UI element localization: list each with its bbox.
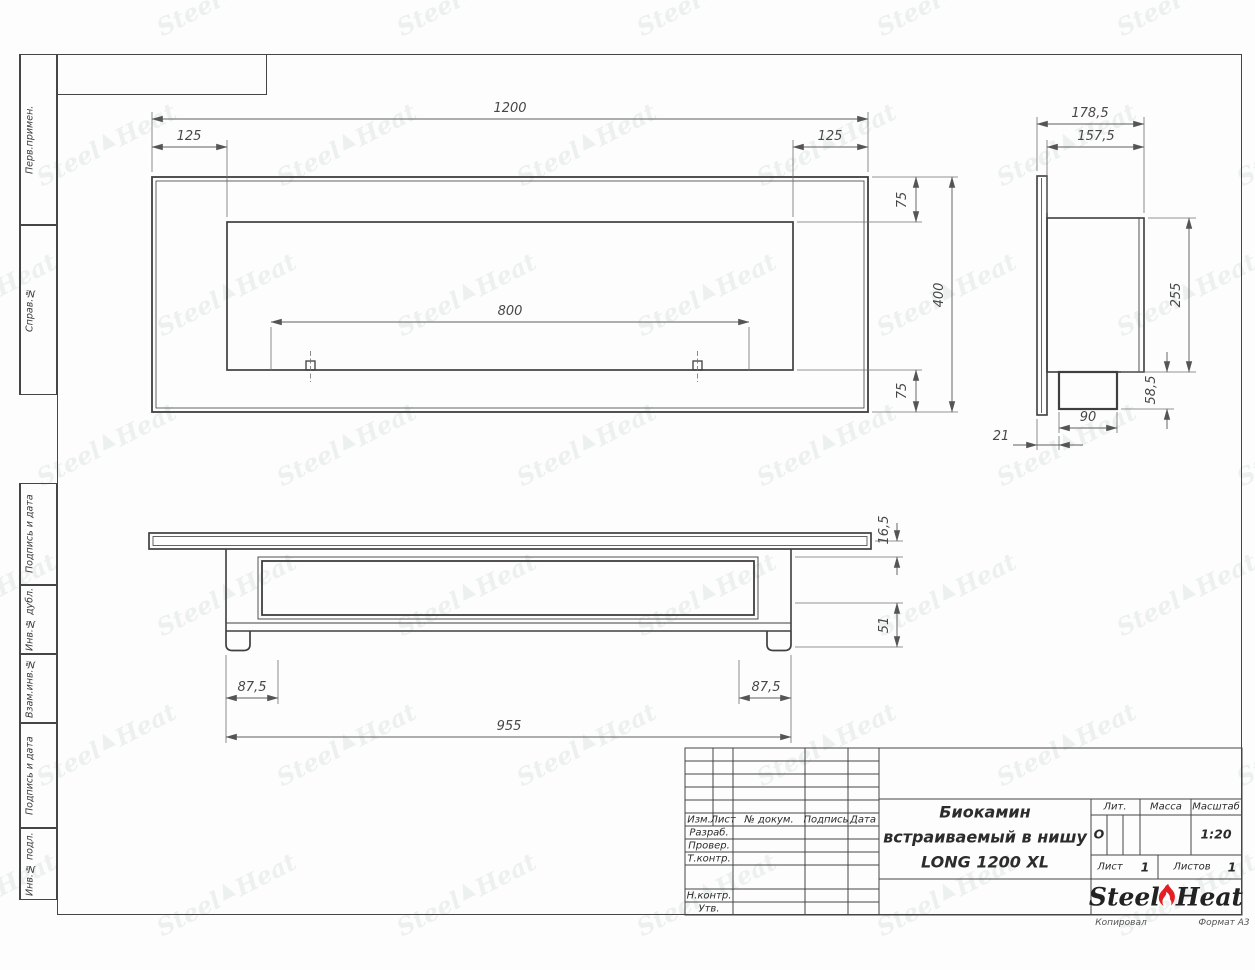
dim-bottom-left-inset: 87,5 (238, 680, 267, 695)
dim-bottom-right-inset: 87,5 (752, 680, 781, 695)
dim-front-bottom-band: 75 (895, 383, 910, 400)
dim-side-burner-width: 90 (1080, 410, 1097, 425)
front-view: 1200 125 125 800 75 400 75 (152, 101, 958, 412)
dim-bottom-body-length: 955 (497, 719, 522, 734)
dim-front-height: 400 (932, 283, 947, 308)
dim-bottom-flange-thickness: 16,5 (877, 516, 892, 545)
dim-bottom-base-height: 51 (877, 617, 892, 634)
foot-left (226, 631, 250, 651)
dim-front-opening-width: 800 (498, 304, 523, 319)
side-view: 178,5 157,5 255 58,5 90 21 (993, 106, 1196, 450)
dim-front-left-offset: 125 (177, 129, 202, 144)
title-block-lines (685, 748, 1242, 915)
dim-side-flange-offset: 21 (993, 429, 1010, 444)
dim-front-right-offset: 125 (818, 129, 843, 144)
foot-right (767, 631, 791, 651)
dim-side-body-height: 255 (1169, 283, 1184, 308)
dim-front-total-width: 1200 (493, 101, 526, 116)
dim-side-burner-height: 58,5 (1144, 376, 1159, 405)
drawing-linework: 1200 125 125 800 75 400 75 (0, 0, 1255, 970)
dim-side-depth-total: 178,5 (1071, 106, 1108, 121)
bottom-view: 16,5 51 87,5 87,5 955 (149, 516, 903, 743)
dim-front-top-band: 75 (895, 192, 910, 209)
burner-block (1059, 372, 1117, 409)
dim-side-depth-body: 157,5 (1077, 129, 1114, 144)
drawing-sheet: SteelHeatSteelHeatSteelHeatSteelHeatStee… (0, 0, 1255, 970)
